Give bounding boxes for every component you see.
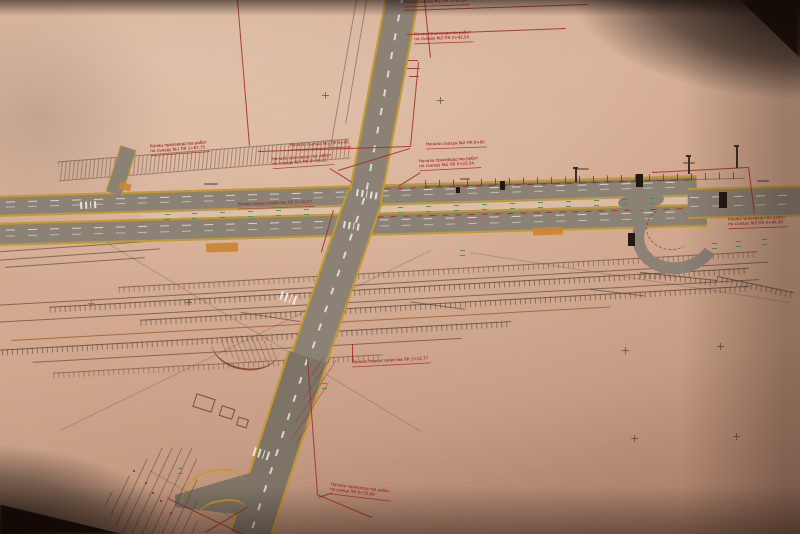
green-mark (322, 383, 327, 389)
structure-block (500, 181, 505, 190)
building-outline (219, 405, 236, 420)
structure-block (636, 174, 643, 187)
survey-cross (437, 97, 444, 104)
green-mark (736, 241, 741, 247)
survey-cross (733, 433, 740, 440)
cross-road-top-segment (348, 0, 420, 204)
annotation-text: по съезду №2 ПК 2+42,54 (414, 36, 471, 43)
building-outline (192, 393, 215, 412)
annotation-street-works-start: Начало производства работ по улице ПК 0+… (330, 483, 393, 501)
survey-cross (631, 435, 638, 442)
green-mark (192, 213, 197, 219)
orange-island (533, 226, 563, 235)
red-dot (133, 470, 135, 472)
survey-cross (622, 347, 629, 354)
survey-cross (185, 299, 192, 306)
red-utility-line (237, 0, 250, 146)
parking-hatch (102, 448, 197, 534)
green-mark (622, 199, 627, 205)
annotation-text: по съезду №2 ПК 0+22,54 (419, 162, 478, 170)
annotation-text: Начало съезда №2 ПК 0+00 (426, 141, 485, 148)
rail-track (0, 279, 759, 323)
drawing-layer: Конец съезда №2 ПК 2+81,20 Конец произво… (0, 0, 800, 534)
orange-island (206, 242, 238, 252)
pole-symbol (734, 145, 739, 147)
green-mark (762, 239, 767, 245)
small-label-blur (460, 178, 470, 180)
green-mark (304, 209, 309, 215)
crosswalk (80, 201, 97, 209)
annotation-ramp2-works-start: Начало производства работ по съезду №2 П… (419, 157, 481, 171)
structure-block (628, 233, 635, 246)
annotation-text: Начало съезда №1 ПК 0+00 (290, 141, 349, 149)
pole-symbol (575, 168, 577, 182)
structure-block (719, 192, 727, 208)
center-dash (249, 359, 308, 534)
green-mark (712, 243, 717, 249)
red-boundary-line (410, 62, 419, 147)
green-mark (276, 210, 281, 216)
survey-cross (88, 300, 95, 307)
structure-block (456, 187, 460, 193)
green-mark (165, 214, 170, 220)
green-mark (454, 205, 459, 211)
red-dot (152, 492, 154, 494)
annotation-text: Конец переустройства ПК 2+10,27 (238, 200, 312, 207)
annotation-ramp2-end: Конец съезда №2 ПК 2+81,20 (404, 0, 469, 7)
pole-symbol (688, 156, 690, 174)
annotation-ramp1-works-start: Начало производства работ по съезду №1 П… (272, 154, 334, 169)
pole-symbol (686, 155, 691, 157)
small-label-blur (204, 183, 218, 185)
pole-symbol (736, 146, 738, 168)
green-mark (482, 204, 487, 210)
survey-cross (717, 343, 724, 350)
green-mark (398, 207, 403, 213)
red-dot (170, 512, 172, 514)
red-tick (409, 76, 419, 77)
small-label-blur (757, 180, 769, 182)
green-mark (426, 206, 431, 212)
annotation-ramp3-works-end: Конец производства работ по съезду №3 ПК… (728, 216, 788, 229)
service-line (345, 0, 367, 123)
annotation-text: Конец съезда №2 ПК 2+81,20 (404, 0, 467, 6)
small-label-blur (683, 162, 695, 164)
center-dash (364, 0, 403, 199)
green-mark (220, 212, 225, 218)
building-outline (236, 417, 249, 429)
small-label-blur (577, 168, 589, 170)
green-mark (594, 200, 599, 206)
red-dot (145, 482, 147, 484)
annotation-text: по съезду №3 ПК 0+94,30 (728, 221, 785, 228)
green-mark (510, 203, 515, 209)
red-dot (160, 500, 162, 502)
lane-dash (690, 194, 800, 198)
survey-cross (322, 92, 329, 99)
green-mark (566, 201, 571, 207)
red-tick (408, 60, 418, 61)
annotation-ramp2-works-end: Конец производства работ по съезду №2 ПК… (414, 31, 474, 44)
photo-of-road-plan: Конец съезда №2 ПК 2+81,20 Конец произво… (0, 0, 800, 534)
green-mark (178, 468, 183, 474)
green-mark (538, 202, 543, 208)
green-mark (460, 250, 465, 256)
green-mark (650, 198, 655, 204)
green-mark (248, 211, 253, 217)
annotation-ramp2-start: Начало съезда №2 ПК 0+00 (426, 141, 487, 149)
red-tick (407, 68, 420, 69)
